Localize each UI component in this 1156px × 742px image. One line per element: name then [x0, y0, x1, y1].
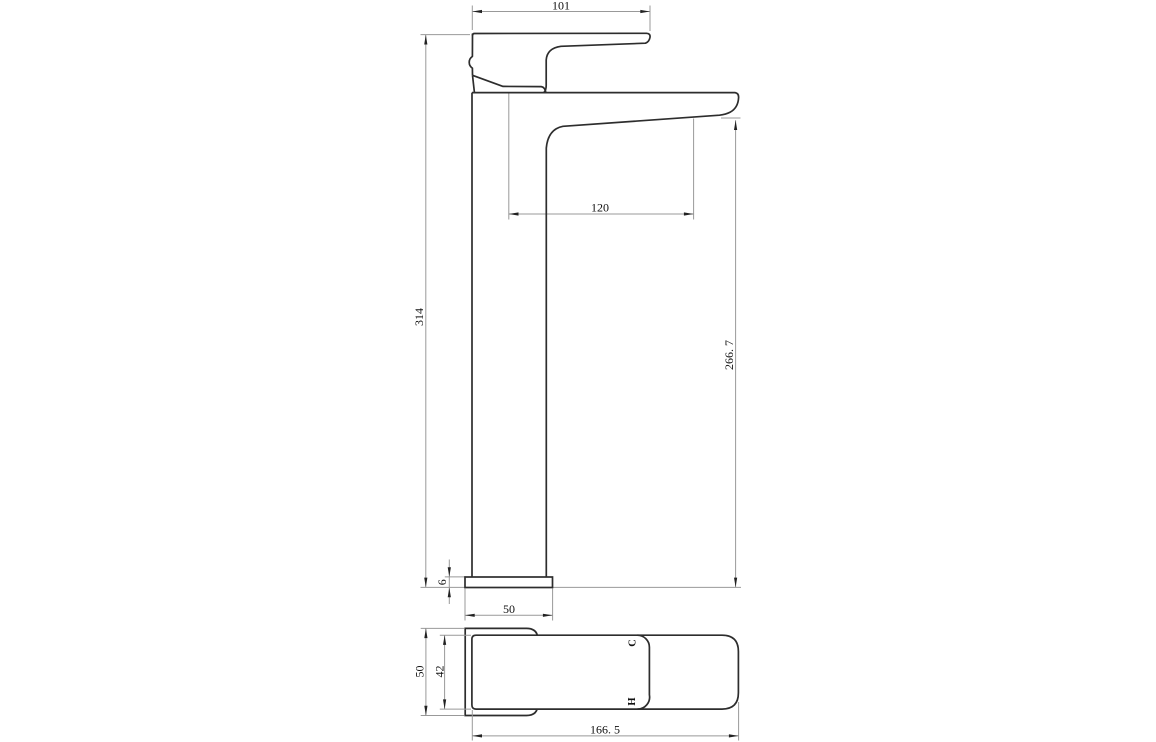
svg-text:166. 5: 166. 5 — [590, 723, 620, 737]
svg-text:101: 101 — [552, 0, 570, 13]
svg-text:C: C — [627, 639, 638, 647]
svg-text:50: 50 — [503, 602, 515, 616]
svg-text:314: 314 — [412, 308, 426, 326]
svg-text:42: 42 — [433, 666, 447, 678]
svg-text:120: 120 — [591, 201, 609, 215]
svg-text:6: 6 — [435, 579, 449, 585]
svg-text:H: H — [627, 697, 638, 705]
svg-text:50: 50 — [413, 666, 427, 678]
svg-text:266. 7: 266. 7 — [722, 340, 736, 370]
